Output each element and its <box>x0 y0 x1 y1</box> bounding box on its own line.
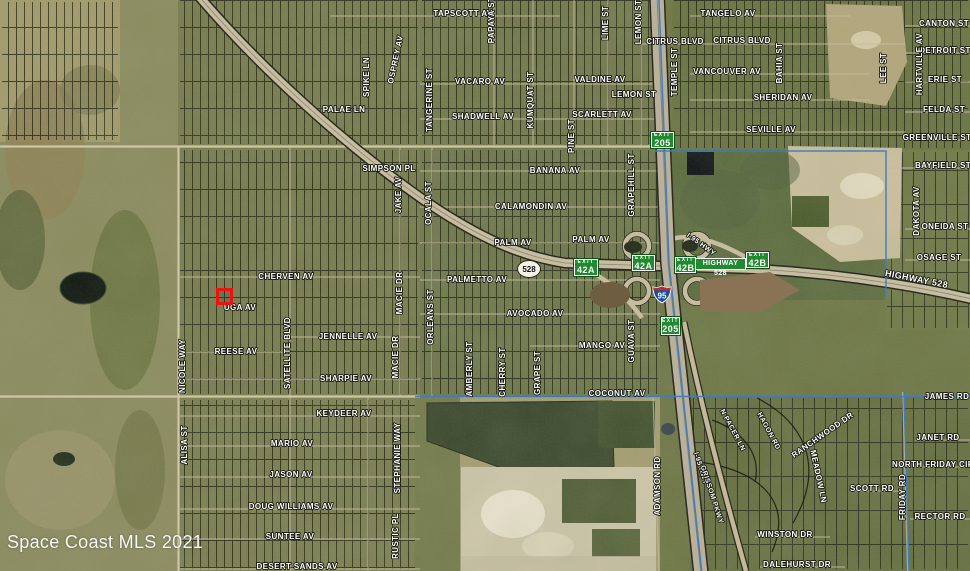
street-label: TANGERINE ST <box>425 68 434 132</box>
street-label: DALEHURST DR <box>763 560 831 569</box>
street-label: JANET RD <box>916 433 959 442</box>
street-label: BAHIA ST <box>775 43 784 84</box>
sr-528-shield: 528 <box>516 259 542 279</box>
street-label: NORTH FRIDAY CIR <box>892 460 970 469</box>
street-label: TEMPLE ST <box>670 48 679 97</box>
street-label: CHERVEN AV <box>258 272 314 281</box>
street-label: HARTVILLE AV <box>915 33 924 95</box>
state-road-number: 528 <box>522 265 536 274</box>
street-label: SPIKE LN <box>362 57 371 97</box>
street-label: FRIDAY RD <box>898 474 907 520</box>
street-label: GRAPEHILL ST <box>627 153 636 216</box>
street-label: JASON AV <box>269 470 312 479</box>
street-label: OCALA ST <box>424 181 433 225</box>
street-label: ONEIDA ST <box>922 222 969 231</box>
street-label: ALISA ST <box>180 425 189 464</box>
street-label: CHERRY ST <box>498 347 507 396</box>
street-label: DOUG WILLIAMS AV <box>249 502 334 511</box>
street-label: GRAPE ST <box>533 351 542 395</box>
street-label: ERIE ST <box>928 75 962 84</box>
street-label: TAPSCOTT AV <box>433 9 493 18</box>
exit-sign: EXIT42B <box>675 257 696 273</box>
street-label: LEMON ST <box>634 0 643 44</box>
street-label: BAYFIELD ST <box>915 161 970 170</box>
street-label: SHERIDAN AV <box>754 93 813 102</box>
street-label: DETROIT ST <box>919 46 970 55</box>
highway-528-sign: HIGHWAY 528 <box>695 258 746 270</box>
street-label: SHADWELL AV <box>452 112 514 121</box>
street-label: DESERT SANDS AV <box>256 562 337 571</box>
street-label: AVOCADO AV <box>507 309 564 318</box>
street-label: CITRUS BLVD <box>646 37 704 46</box>
street-label: VANCOUVER AV <box>693 67 761 76</box>
street-label: KEYDEER AV <box>316 409 371 418</box>
street-label: VACARO AV <box>455 77 505 86</box>
street-label: CANTON ST <box>919 19 969 28</box>
exit-sign: EXIT205 <box>651 132 674 148</box>
street-label: COCONUT AV <box>589 389 646 398</box>
street-label: PALM AV <box>494 238 532 247</box>
street-label: PALMETTO AV <box>447 275 507 284</box>
interstate-number: 95 <box>658 292 667 301</box>
street-label: ORLEANS ST <box>426 289 435 345</box>
street-label: SIMPSON PL <box>362 164 415 173</box>
street-label: SATELLITE BLVD <box>283 317 292 389</box>
street-label: CITRUS BLVD <box>713 36 771 45</box>
street-label: JENNELLE AV <box>319 332 378 341</box>
street-label: REESE AV <box>215 347 258 356</box>
street-label: PALAE LN <box>323 105 366 114</box>
street-label: RUSTIC PL <box>391 513 400 559</box>
street-label: MARIO AV <box>271 439 314 448</box>
street-label: GUAVA ST <box>627 319 636 362</box>
street-label: CALAMONDIN AV <box>495 202 568 211</box>
street-label: BANANA AV <box>530 166 581 175</box>
mls-watermark: Space Coast MLS 2021 <box>7 532 203 553</box>
street-label: SEVILLE AV <box>746 125 796 134</box>
street-label: LIME ST <box>601 6 610 40</box>
street-label: OSAGE ST <box>917 253 962 262</box>
street-label: NICOLE WAY <box>178 339 187 393</box>
street-label: PALM AV <box>572 235 610 244</box>
street-label: WINSTON DR <box>757 530 812 539</box>
street-label: JAKE AV <box>394 176 403 213</box>
street-label: SHARPIE AV <box>320 374 372 383</box>
street-label: TANGELO AV <box>701 9 756 18</box>
street-label: PAPAYA ST <box>487 0 496 43</box>
property-marker[interactable] <box>216 288 233 305</box>
street-label: VALDINE AV <box>575 75 626 84</box>
street-label: PINE ST <box>567 119 576 153</box>
street-label: GREENVILLE ST <box>903 133 970 142</box>
satellite-imagery: TAPSCOTT AVTANGELO AVCANTON STCITRUS BLV… <box>0 0 970 571</box>
street-label: LEMON ST <box>612 90 657 99</box>
street-label: KUMQUAT ST <box>526 72 535 129</box>
street-label: MACIE DR <box>391 336 400 379</box>
street-label: SUNTEE AV <box>266 532 315 541</box>
street-label: MANGO AV <box>579 341 626 350</box>
street-label: SCOTT RD <box>850 484 894 493</box>
exit-sign: EXIT42A <box>574 259 598 276</box>
street-label: AMBERLY ST <box>465 341 474 396</box>
map-viewport[interactable]: TAPSCOTT AVTANGELO AVCANTON STCITRUS BLV… <box>0 0 970 571</box>
street-label: JAMES RD <box>925 392 970 401</box>
exit-sign: EXIT205 <box>661 317 680 335</box>
street-label: ADAMSON RD <box>653 456 662 515</box>
exit-sign: EXIT42A <box>632 255 655 271</box>
street-label: RECTOR RD <box>914 512 965 521</box>
street-label: MACIE DR <box>395 272 404 315</box>
street-label: FELDA ST <box>923 105 965 114</box>
street-label: LEE ST <box>879 53 888 83</box>
street-label: DAKOTA AV <box>912 186 921 236</box>
street-label: STEPHANIE WAY <box>393 422 402 493</box>
street-label: SCARLETT AV <box>572 110 632 119</box>
interstate-95-shield: 95 <box>652 285 672 304</box>
exit-sign: EXIT42B <box>746 252 769 268</box>
